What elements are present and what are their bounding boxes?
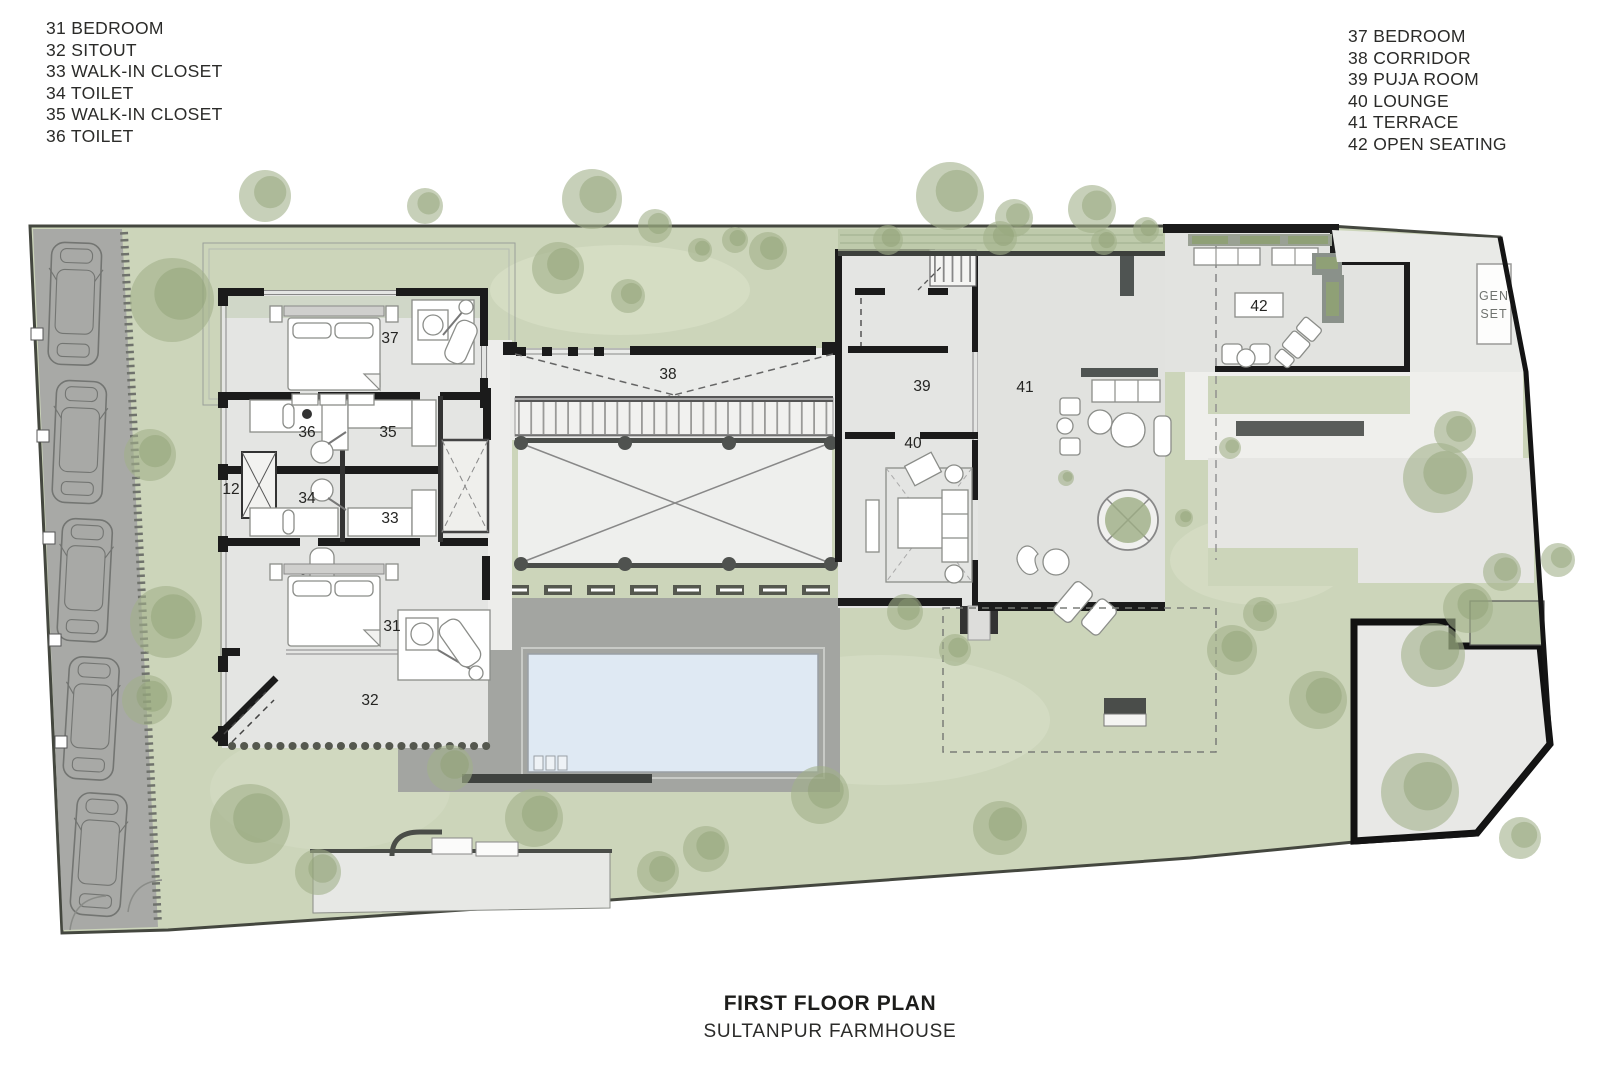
floor-plan-drawing: 37 38 36 35 12 34 33 31 32 39 41 40 42 G… (0, 0, 1600, 1089)
title-secondary: SULTANPUR FARMHOUSE (703, 1021, 956, 1043)
room-label-40: 40 (904, 435, 922, 452)
room-label-31: 31 (383, 618, 400, 635)
right-terrace (1185, 372, 1534, 586)
double-height-void (514, 436, 838, 571)
bedroom-block (203, 243, 515, 748)
staircase (515, 396, 833, 436)
title-primary: FIRST FLOOR PLAN (703, 992, 956, 1016)
pool-step (534, 756, 543, 770)
room-label-33: 33 (381, 510, 398, 527)
grass-strip (1208, 376, 1410, 414)
room-label-39: 39 (913, 378, 930, 395)
room-label-35: 35 (379, 424, 396, 441)
pool-step (558, 756, 567, 770)
room-label-12: 12 (222, 481, 239, 498)
room-label-34: 34 (298, 490, 316, 507)
room-label-41: 41 (1016, 379, 1033, 396)
plan-title: FIRST FLOOR PLAN SULTANPUR FARMHOUSE (703, 992, 956, 1043)
room-label-32: 32 (361, 692, 378, 709)
room-label-38: 38 (659, 366, 676, 383)
genset-label-line1: GEN (1479, 289, 1509, 303)
swimming-pool (528, 654, 818, 772)
floor-plan-page: 31 BEDROOM 32 SITOUT 33 WALK-IN CLOSET 3… (0, 0, 1600, 1089)
garden-bench (1236, 421, 1364, 436)
room-label-36: 36 (298, 424, 315, 441)
room-label-42: 42 (1250, 298, 1267, 315)
deck-bench (462, 774, 652, 783)
seating-37 (412, 300, 480, 367)
seating-31 (398, 610, 490, 680)
lawn-bench (1104, 698, 1146, 714)
pool-step (546, 756, 555, 770)
duct-shaft (442, 440, 488, 532)
bed-37 (270, 306, 398, 405)
genset-label-line2: SET (1480, 307, 1507, 321)
room-label-37: 37 (381, 330, 398, 347)
fireplace (1120, 256, 1134, 296)
bed-31 (270, 564, 398, 646)
